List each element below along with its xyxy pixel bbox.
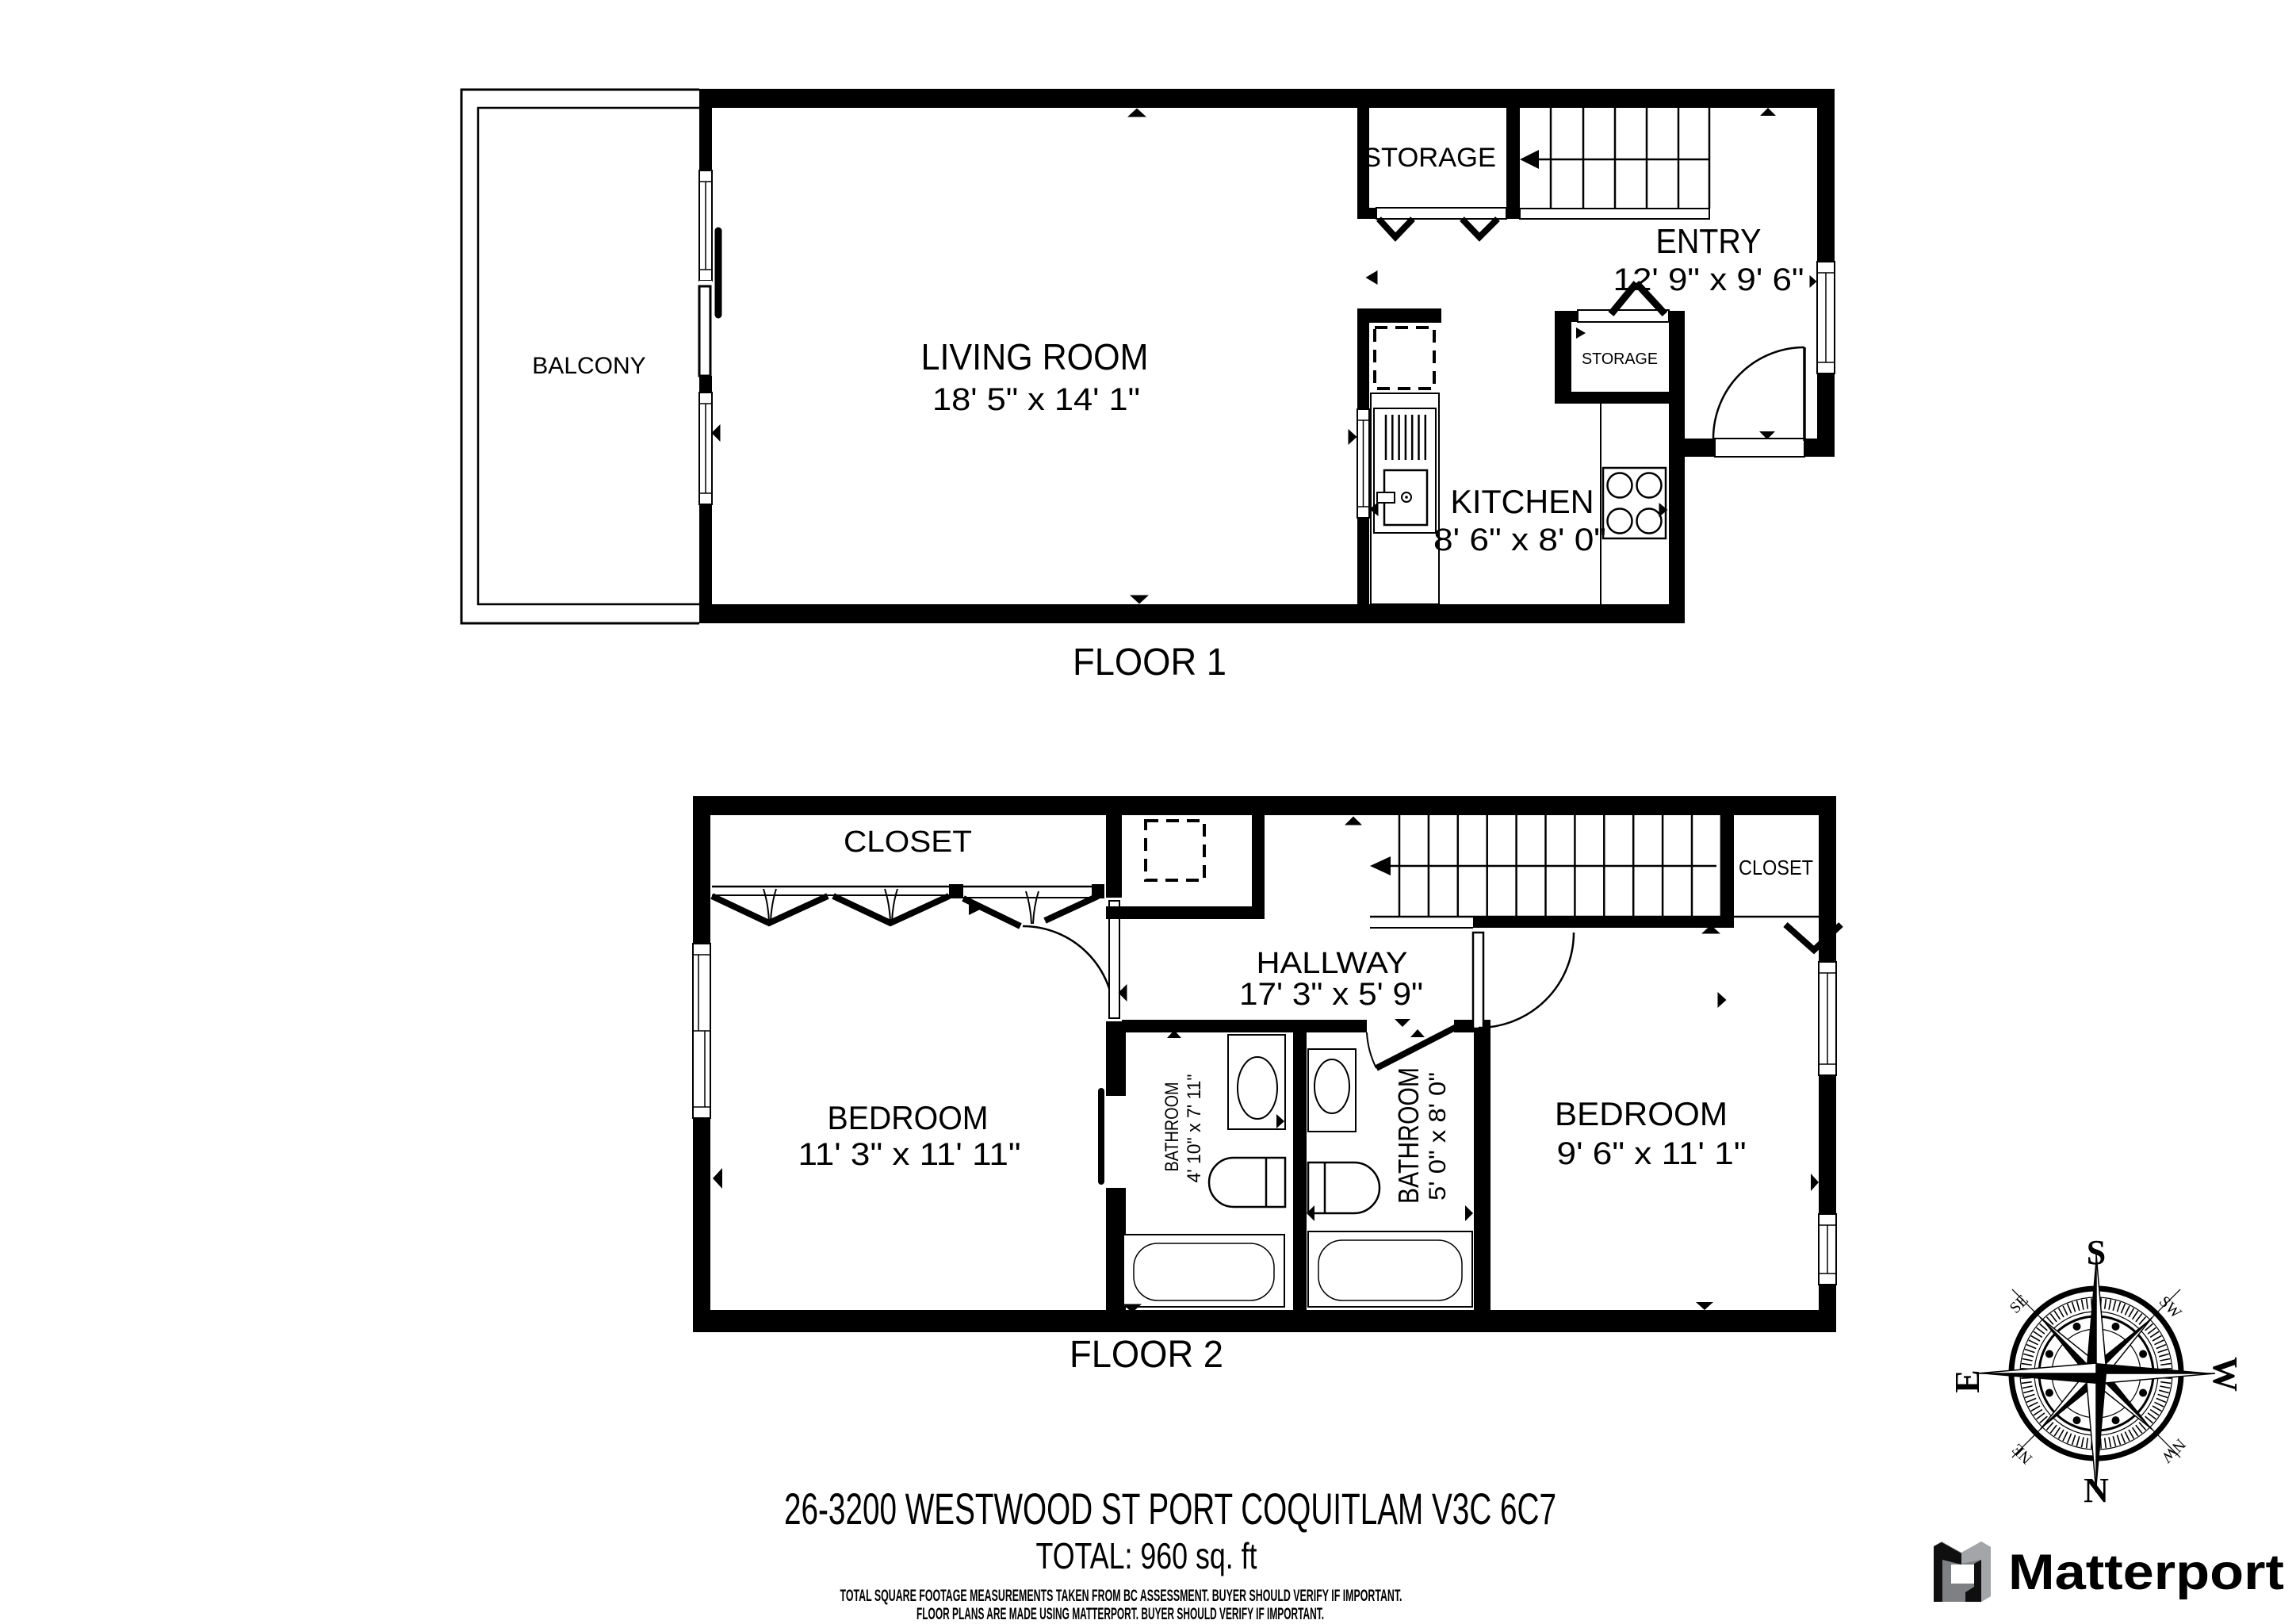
svg-text:TOTAL SQUARE FOOTAGE MEASUREME: TOTAL SQUARE FOOTAGE MEASUREMENTS TAKEN … — [840, 1587, 1402, 1605]
svg-text:CLOSET: CLOSET — [844, 825, 972, 859]
svg-text:HALLWAY: HALLWAY — [1257, 947, 1408, 980]
svg-text:17' 3" x 5' 9": 17' 3" x 5' 9" — [1239, 977, 1423, 1012]
svg-text:STORAGE: STORAGE — [1582, 350, 1658, 368]
svg-text:N: N — [2084, 1471, 2109, 1510]
svg-text:9' 6" x 11' 1": 9' 6" x 11' 1" — [1557, 1136, 1747, 1171]
svg-text:STORAGE: STORAGE — [1363, 143, 1496, 173]
svg-text:18' 5" x 14' 1": 18' 5" x 14' 1" — [932, 382, 1140, 417]
svg-text:BATHROOM: BATHROOM — [1392, 1067, 1425, 1204]
svg-text:FLOOR 2: FLOOR 2 — [1070, 1334, 1223, 1376]
svg-text:CLOSET: CLOSET — [1739, 856, 1813, 879]
svg-text:FLOOR PLANS ARE MADE USING MAT: FLOOR PLANS ARE MADE USING MATTERPORT. B… — [916, 1605, 1324, 1623]
svg-text:8' 6" x 8' 0": 8' 6" x 8' 0" — [1433, 523, 1606, 557]
svg-text:5' 0" x 8' 0": 5' 0" x 8' 0" — [1425, 1072, 1451, 1201]
svg-text:26-3200 WESTWOOD ST PORT COQUI: 26-3200 WESTWOOD ST PORT COQUITLAM V3C 6… — [784, 1484, 1556, 1534]
svg-text:BEDROOM: BEDROOM — [828, 1099, 989, 1136]
svg-text:W: W — [2206, 1357, 2244, 1392]
svg-text:BALCONY: BALCONY — [532, 353, 645, 379]
svg-text:BATHROOM: BATHROOM — [1161, 1082, 1183, 1172]
svg-text:KITCHEN: KITCHEN — [1451, 483, 1594, 520]
svg-text:BEDROOM: BEDROOM — [1555, 1095, 1728, 1132]
svg-text:FLOOR 1: FLOOR 1 — [1073, 642, 1226, 684]
svg-text:4' 10" x 7' 11": 4' 10" x 7' 11" — [1184, 1074, 1205, 1183]
svg-text:TOTAL: 960 sq. ft: TOTAL: 960 sq. ft — [1036, 1535, 1257, 1576]
svg-text:11' 3" x 11' 11": 11' 3" x 11' 11" — [798, 1137, 1021, 1172]
svg-text:ENTRY: ENTRY — [1656, 222, 1762, 261]
svg-text:Matterport: Matterport — [2008, 1545, 2284, 1600]
svg-text:S: S — [2087, 1233, 2106, 1272]
svg-text:E: E — [1948, 1369, 1987, 1392]
svg-text:LIVING ROOM: LIVING ROOM — [921, 336, 1149, 377]
